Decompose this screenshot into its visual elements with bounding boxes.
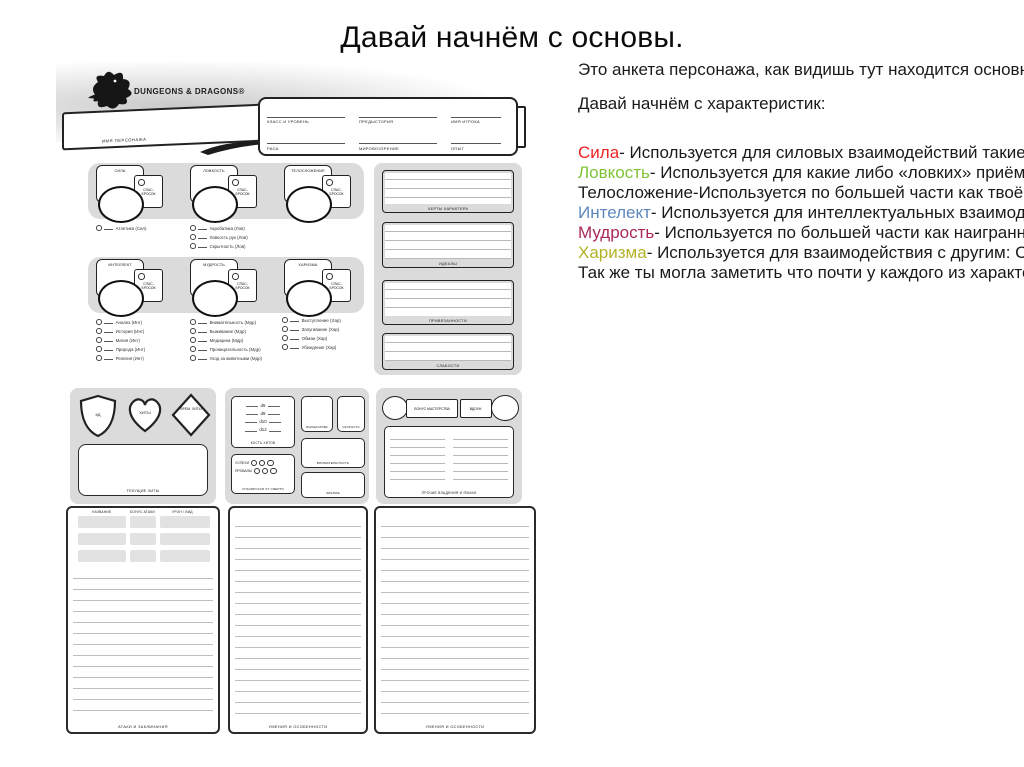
- notes-text-block: Это анкета персонажа, как видишь тут нах…: [578, 60, 1024, 290]
- inspiration-circle: [491, 395, 519, 421]
- note-line-constitution: Телосложение-Используется по большей час…: [578, 183, 1023, 203]
- skill-item: Атлетика (Сил): [96, 224, 146, 232]
- ideals-box: ИДЕАЛЫ: [382, 222, 514, 268]
- armor-class-label: КД: [78, 412, 118, 417]
- skill-item: Проницательность (Мдр): [190, 345, 261, 353]
- ruled-lines: [390, 432, 445, 487]
- ability-strength: СИЛА СПАС- БРОСОК: [96, 165, 162, 223]
- proficiency-panel: БОНУС МАСТЕРСТВА ВДОХН. ПРОЧИЕ ВЛАДЕНИЯ …: [376, 388, 522, 504]
- field-player-name: ИМЯ ИГРОКА: [446, 100, 510, 127]
- flaws-box: СЛАБОСТИ: [382, 333, 514, 370]
- ability-score-oval: [98, 186, 144, 223]
- skill-item: Религия (Инт): [96, 354, 144, 362]
- features-panel-label: УМЕНИЯ И ОСОБЕННОСТИ: [376, 725, 534, 729]
- attack-name-cell: [78, 533, 126, 545]
- slide-title: Давай начнём с основы.: [0, 21, 1024, 55]
- attacks-panel-label: АТАКИ И ЗАКЛИНАНИЯ: [68, 725, 218, 729]
- skill-item: Запугивание (Хар): [282, 325, 339, 333]
- ability-score-oval: [286, 186, 332, 223]
- attack-damage-cell: [160, 533, 210, 545]
- note-line: Давай начнём с характеристик:: [578, 94, 826, 114]
- field-experience: ОПЫТ: [446, 127, 510, 154]
- perception-box: ВНИМАТЕЛЬНОСТЬ: [301, 438, 365, 468]
- field-background: ПРЕДЫСТОРИЯ: [354, 100, 446, 127]
- proficiency-bonus-tag: БОНУС МАСТЕРСТВА: [406, 399, 458, 418]
- temp-hits-diamond-icon: [170, 392, 212, 438]
- ability-constitution: ТЕЛОСЛОЖЕНИЕ СПАС- БРОСОК: [284, 165, 350, 223]
- note-line-dexterity: Ловкость- Используется для какие либо «л…: [578, 163, 1024, 183]
- hit-points-label: ХИТЫ: [124, 410, 166, 415]
- skill-item: Акробатика (Лов): [190, 224, 245, 232]
- ability-wisdom: МУДРОСТЬ СПАС- БРОСОК: [190, 259, 256, 317]
- skill-item: Природа (Инт): [96, 345, 145, 353]
- dnd-dragon-logo-icon: [86, 68, 134, 112]
- ability-intelligence: ИНТЕЛЛЕКТ СПАС- БРОСОК: [96, 259, 162, 317]
- skill-item: Обман (Хар): [282, 334, 327, 342]
- ability-score-oval: [192, 186, 238, 223]
- note-line-wisdom: Мудрость- Используется по большей части …: [578, 223, 1024, 243]
- attack-bonus-cell: [130, 516, 156, 528]
- header-fields-box: КЛАСС И УРОВЕНЬ ПРЕДЫСТОРИЯ ИМЯ ИГРОКА Р…: [258, 97, 518, 156]
- note-line: Так же ты могла заметить что почти у каж…: [578, 263, 1024, 283]
- save-circle: [232, 179, 239, 186]
- field-class-level: КЛАСС И УРОВЕНЬ: [262, 100, 354, 127]
- field-alignment: МИРОВОЗЗРЕНИЕ: [354, 127, 446, 154]
- initiative-box: ИНИЦИАТИВА: [301, 396, 333, 432]
- note-line-strength: Сила- Используется для силовых взаимодей…: [578, 143, 1024, 163]
- save-circle: [138, 273, 145, 280]
- save-circle: [326, 273, 333, 280]
- ability-score-oval: [98, 280, 144, 317]
- skill-item: Скрытность (Лов): [190, 242, 245, 250]
- attack-damage-cell: [160, 516, 210, 528]
- inspiration-tag: ВДОХН.: [460, 399, 492, 418]
- death-save-failures: ПРОВАЛЫ: [232, 467, 294, 475]
- character-name-label: ИМЯ ПЕРСОНАЖА: [102, 137, 146, 144]
- traits-panel: ЧЕРТЫ ХАРАКТЕРА ИДЕАЛЫ ПРИВЯЗАННОСТИ СЛА…: [374, 163, 522, 375]
- death-saves-box: УСПЕХИ ПРОВАЛЫ СПАСБРОСКИ ОТ СМЕРТИ: [231, 454, 295, 494]
- hit-die-row: d8: [232, 409, 294, 417]
- hit-die-row: d12: [232, 426, 294, 434]
- save-circle: [326, 179, 333, 186]
- speed-box: СКОРОСТЬ: [337, 396, 365, 432]
- hit-die-row: d10: [232, 417, 294, 425]
- dice-panel: d6 d8 d10 d12 КОСТЬ ХИТОВ УСПЕХИ ПРОВАЛЫ…: [225, 388, 369, 504]
- ability-score-oval: [286, 280, 332, 317]
- save-circle: [138, 179, 145, 186]
- skill-item: Выживание (Мдр): [190, 327, 246, 335]
- ruled-lines: [453, 432, 508, 487]
- temp-hits-label: ВРЕМ. ХИТЫ: [170, 407, 212, 411]
- ability-charisma: ХАРИЗМА СПАС- БРОСОК: [284, 259, 350, 317]
- skill-item: Уход за животными (Мдр): [190, 354, 262, 362]
- skill-item: Анализ (Инт): [96, 318, 142, 326]
- attack-bonus-cell: [130, 533, 156, 545]
- skill-item: Медицина (Мдр): [190, 336, 243, 344]
- ability-dexterity: ЛОВКОСТЬ СПАС- БРОСОК: [190, 165, 256, 223]
- attack-bonus-cell: [130, 550, 156, 562]
- hit-points-heart-icon: [124, 396, 166, 434]
- skill-item: Убеждение (Хар): [282, 343, 336, 351]
- skill-item: Ловкость рук (Лов): [190, 233, 248, 241]
- features-panel: УМЕНИЯ И ОСОБЕННОСТИ: [228, 506, 368, 734]
- hit-dice-box: d6 d8 d10 d12 КОСТЬ ХИТОВ: [231, 396, 295, 448]
- attacks-panel: НАЗВАНИЕ БОНУС АТАКИ УРОН / ВИД АТАКИ И …: [66, 506, 220, 734]
- note-line-charisma: Харизма- Используется для взаимодействия…: [578, 243, 1024, 263]
- attack-damage-cell: [160, 550, 210, 562]
- ruled-lines: [73, 568, 213, 720]
- combat-panel: КД ХИТЫ ВРЕМ. ХИТЫ ТЕКУЩИЕ ХИТЫ: [70, 388, 216, 504]
- skill-item: Внимательность (Мдр): [190, 318, 256, 326]
- skill-item: История (Инт): [96, 327, 144, 335]
- personality-traits-box: ЧЕРТЫ ХАРАКТЕРА: [382, 170, 514, 213]
- hit-die-row: d6: [232, 401, 294, 409]
- field-race: РАСА: [262, 127, 354, 154]
- death-save-successes: УСПЕХИ: [232, 459, 294, 467]
- note-line: Это анкета персонажа, как видишь тут нах…: [578, 60, 1024, 80]
- note-line-intelligence: Интелект- Используется для интеллектуаль…: [578, 203, 1024, 223]
- ruled-lines: [235, 516, 361, 720]
- ability-score-oval: [192, 280, 238, 317]
- attack-name-cell: [78, 516, 126, 528]
- features-panel-2: УМЕНИЯ И ОСОБЕННОСТИ: [374, 506, 536, 734]
- attack-name-cell: [78, 550, 126, 562]
- proficiency-bonus-circle: [382, 396, 408, 420]
- presentation-slide: Давай начнём с основы. DUNGEONS & DRAGON…: [0, 0, 1024, 767]
- current-hits-box: ТЕКУЩИЕ ХИТЫ: [78, 444, 208, 496]
- ruled-lines: [381, 516, 529, 720]
- skill-item: Выступление (Хар): [282, 316, 341, 324]
- vision-box: ЗРЕНИЕ: [301, 472, 365, 498]
- features-panel-label: УМЕНИЯ И ОСОБЕННОСТИ: [230, 725, 366, 729]
- dnd-wordmark: DUNGEONS & DRAGONS®: [134, 87, 245, 96]
- character-sheet: DUNGEONS & DRAGONS® ИМЯ ПЕРСОНАЖА КЛАСС …: [62, 60, 540, 738]
- save-circle: [232, 273, 239, 280]
- skill-item: Магия (Инт): [96, 336, 140, 344]
- other-proficiencies-box: ПРОЧИЕ ВЛАДЕНИЯ И ЯЗЫКИ: [384, 426, 514, 498]
- bonds-box: ПРИВЯЗАННОСТИ: [382, 280, 514, 325]
